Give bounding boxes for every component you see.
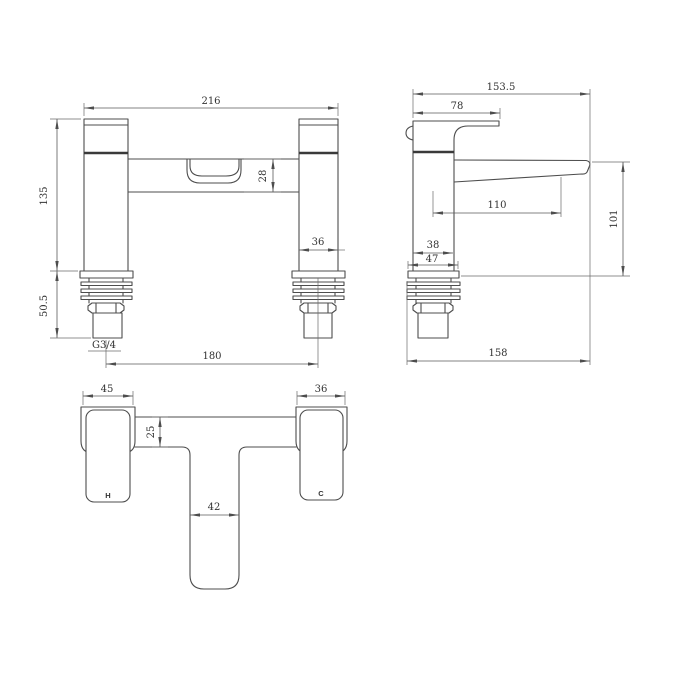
front-left-hex-nut [88,303,124,313]
label-front-thread: G3/4 [92,340,116,351]
front-right-flange [292,271,345,278]
front-left-washer-1 [81,282,132,286]
front-view: 216 135 50.5 28 36 G3/4 180 [39,96,345,368]
dim-side-handle-length: 78 [451,101,464,112]
front-left-flange [80,271,133,278]
dim-plan-spout-width: 42 [208,502,221,513]
side-flange [408,271,459,278]
dim-side-total-depth: 158 [488,348,507,359]
front-right-mounting [292,271,345,338]
side-view: 153.5 78 110 101 38 47 158 [406,82,630,365]
front-right-pillar [299,119,338,271]
label-cold: C [318,489,324,498]
dim-front-pillar-width: 36 [312,237,325,248]
side-hex-nut [413,303,453,313]
dim-front-overall-width: 216 [201,96,220,107]
plan-hot-handle [86,410,130,502]
dim-side-overall-depth: 153.5 [487,82,516,93]
label-hot: H [105,491,110,500]
dim-front-body-height: 135 [39,186,50,205]
technical-drawing-canvas: 216 135 50.5 28 36 G3/4 180 [0,0,675,675]
front-spout-inner-line [190,159,239,176]
dim-front-under-deck: 50.5 [39,295,50,317]
front-left-mounting [80,271,133,338]
dim-side-body-depth: 38 [427,240,440,251]
drawing-sheet: 216 135 50.5 28 36 G3/4 180 [0,0,675,675]
front-left-washer-3 [81,296,132,300]
side-inlet-pipe [418,313,448,338]
front-right-washer-2 [293,289,344,293]
side-washer-2 [407,289,460,293]
dim-side-base-depth: 47 [426,254,439,265]
dim-front-crossbar: 28 [258,170,269,183]
front-left-inlet-pipe [93,313,122,338]
plan-cold-handle [300,410,343,500]
side-body-bump [406,126,413,140]
dim-side-spout-height: 101 [609,209,620,228]
front-spout-outline [187,159,241,183]
side-mounting [407,271,460,338]
front-right-washer-3 [293,296,344,300]
front-right-washer-1 [293,282,344,286]
dim-plan-bar-depth: 25 [146,426,157,439]
dim-plan-hot-width: 45 [101,384,114,395]
dim-plan-cold-width: 36 [315,384,328,395]
dim-front-inlet-centres: 180 [202,351,221,362]
plan-spout [182,447,247,589]
side-washer-1 [407,282,460,286]
front-left-pillar [84,119,128,271]
dim-side-spout-reach: 110 [487,200,506,211]
side-spout [454,160,590,182]
front-left-washer-2 [81,289,132,293]
plan-view: H C 45 36 25 42 [81,384,347,589]
side-washer-3 [407,296,460,300]
